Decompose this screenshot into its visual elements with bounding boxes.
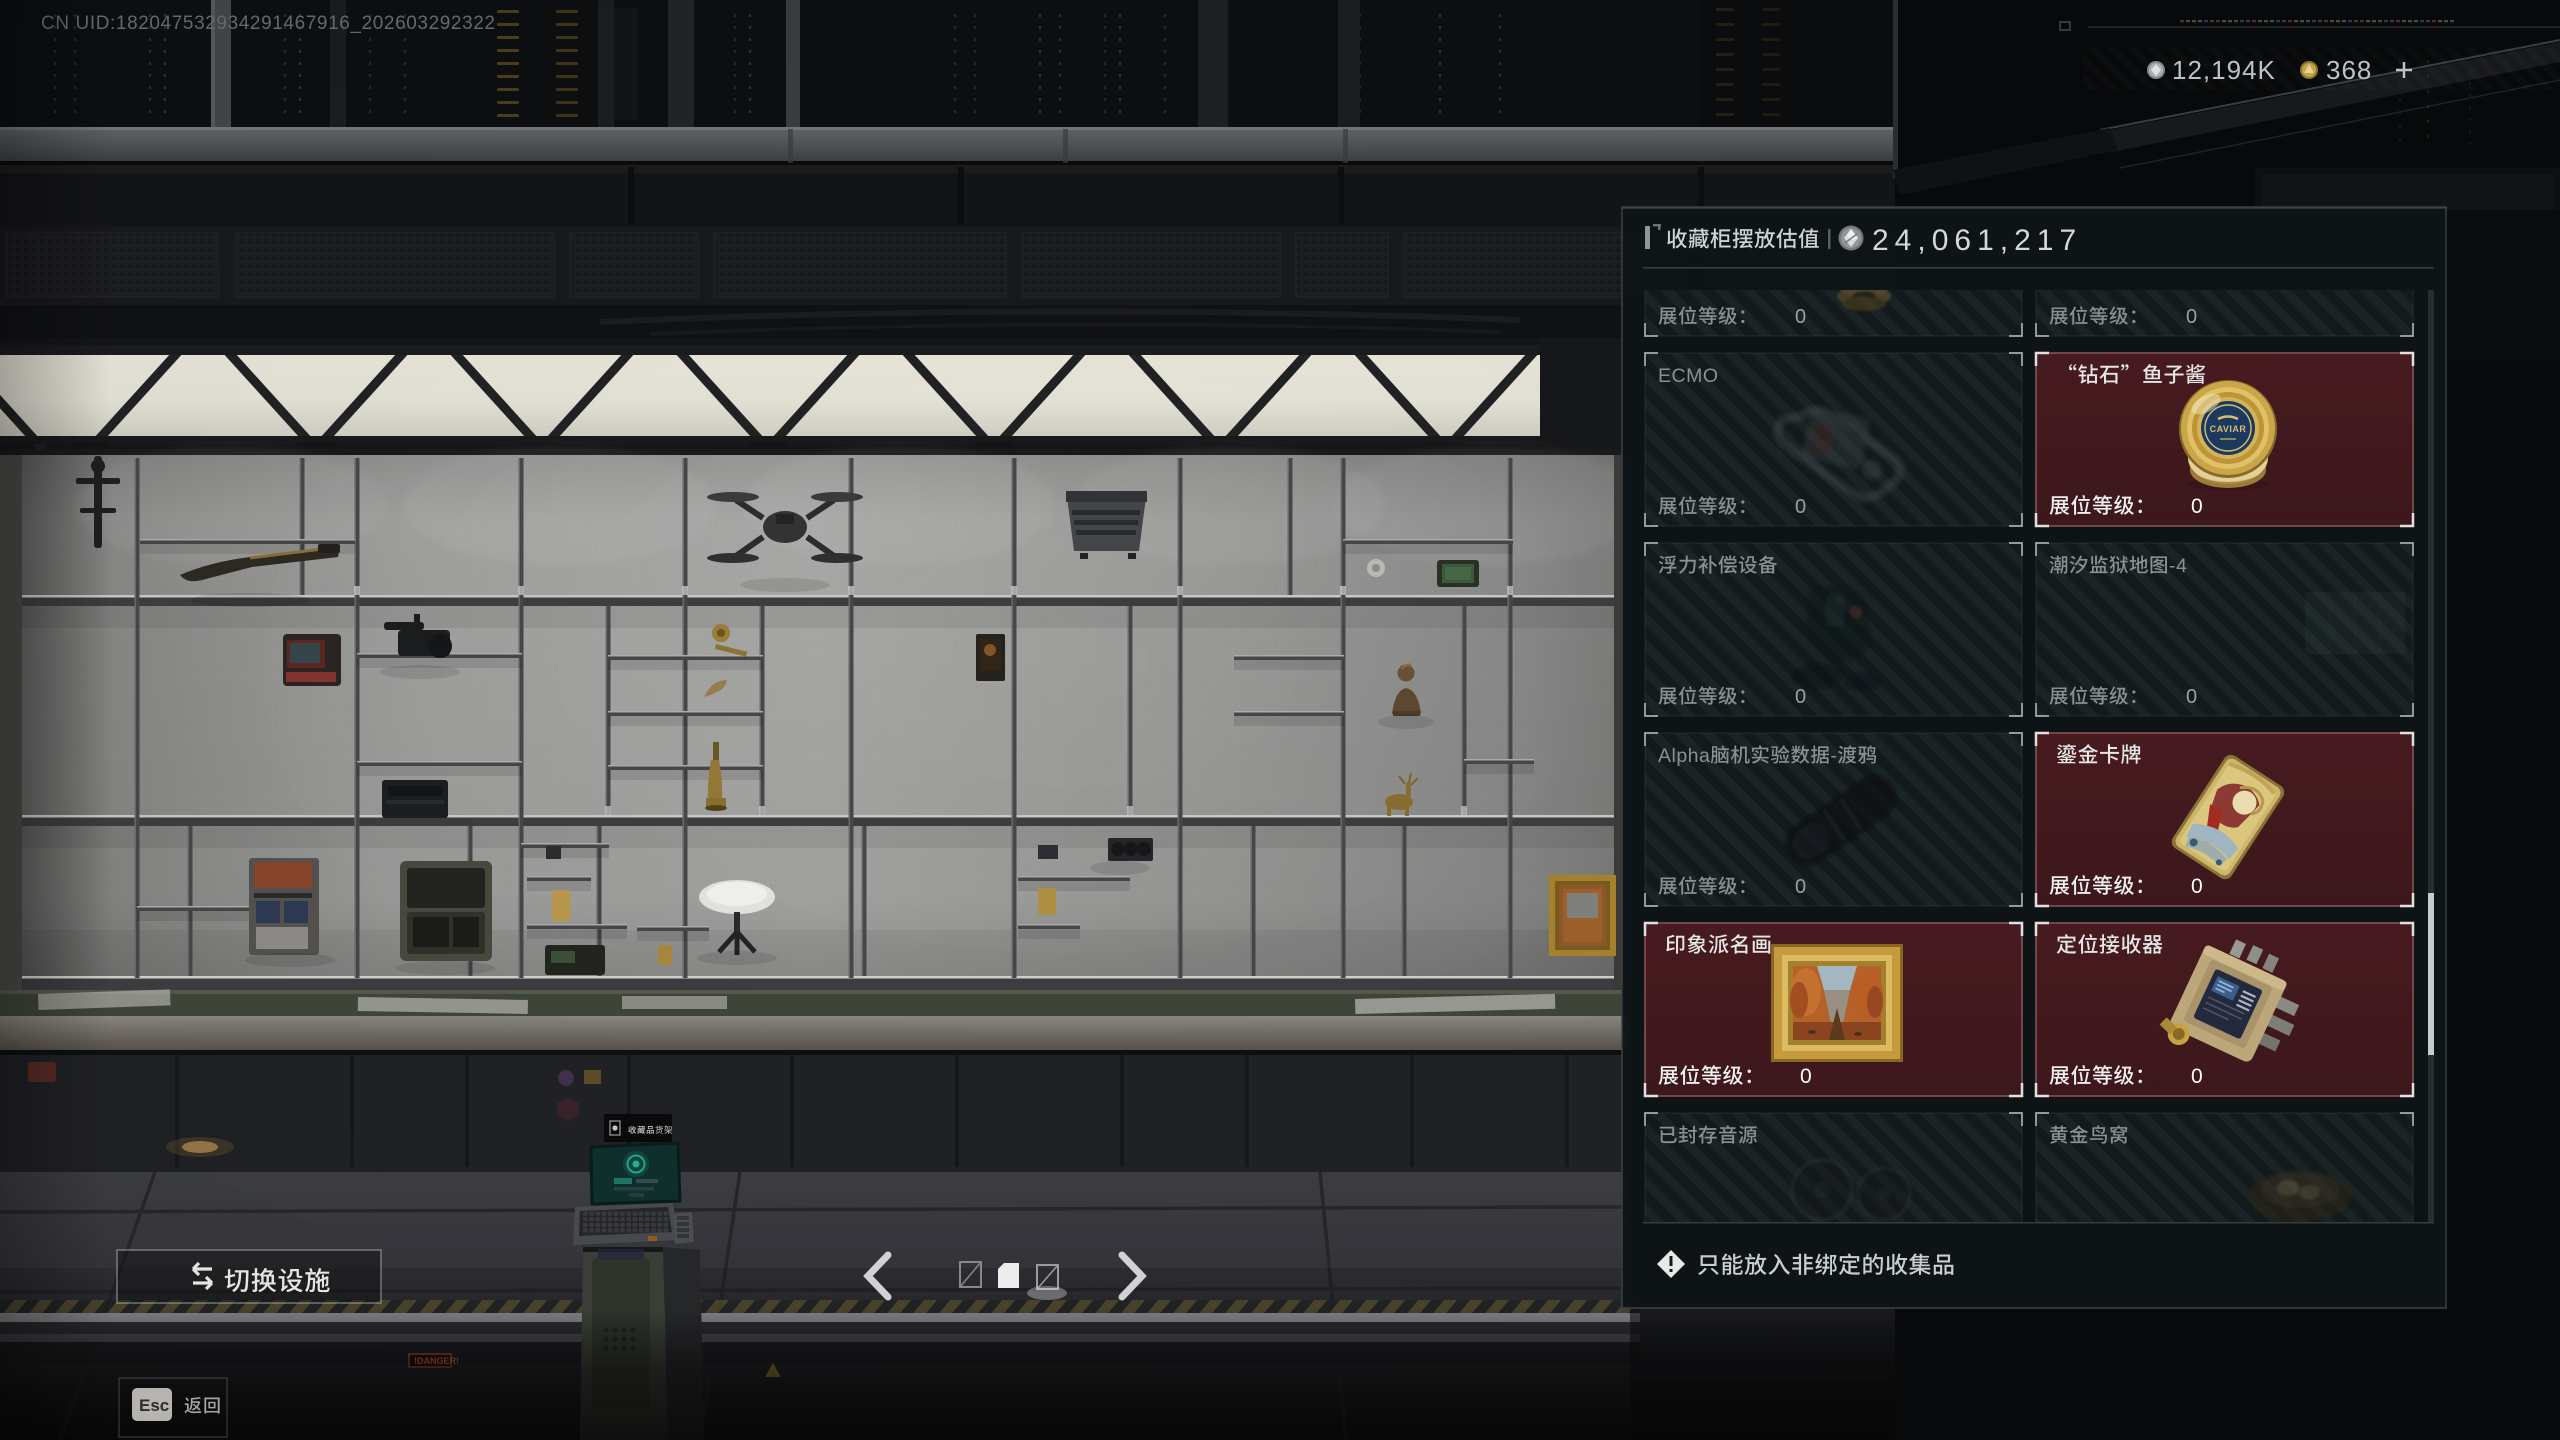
svg-text:24,061,217: 24,061,217 xyxy=(1872,224,2082,257)
svg-text:-: - xyxy=(1830,745,1837,767)
svg-text:0: 0 xyxy=(2186,686,2197,708)
svg-text:CAVIAR: CAVIAR xyxy=(2210,424,2247,434)
svg-text:368: 368 xyxy=(2326,55,2372,85)
svg-text:0: 0 xyxy=(1795,686,1806,708)
svg-text:0: 0 xyxy=(1800,1065,1812,1088)
svg-text:0: 0 xyxy=(2191,495,2203,518)
svg-text:0: 0 xyxy=(2191,875,2203,898)
svg-text:0: 0 xyxy=(1795,876,1806,898)
svg-text:0: 0 xyxy=(2186,306,2197,328)
svg-text:12,194K: 12,194K xyxy=(2172,55,2276,85)
svg-text:ECMO: ECMO xyxy=(1658,365,1719,387)
svg-text:Esc: Esc xyxy=(139,1396,169,1415)
svg-text:-4: -4 xyxy=(2169,555,2187,577)
svg-text:0: 0 xyxy=(1795,496,1806,518)
svg-text:0: 0 xyxy=(2191,1065,2203,1088)
svg-text:Alpha: Alpha xyxy=(1658,745,1710,767)
svg-text:0: 0 xyxy=(1795,306,1806,328)
